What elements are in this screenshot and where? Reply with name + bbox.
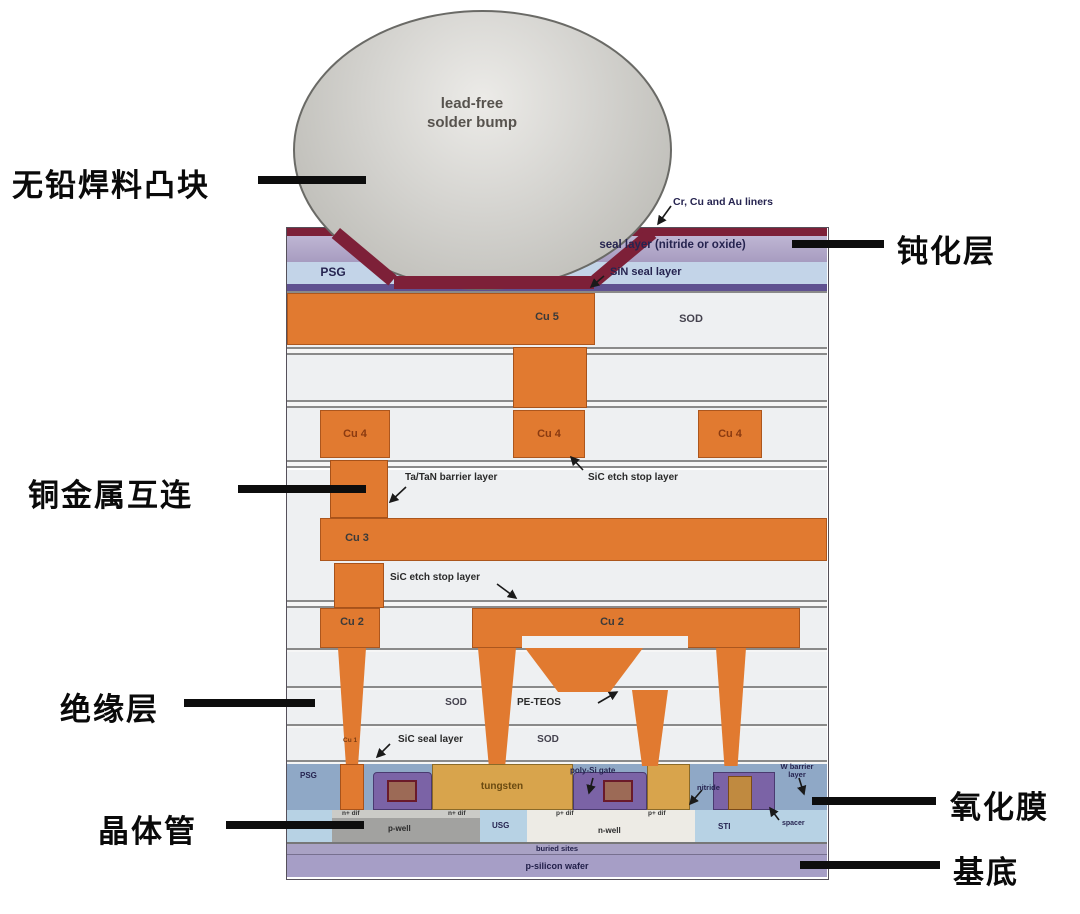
tatan-label: Ta/TaN barrier layer <box>405 472 497 483</box>
callout-interconnect: 铜金属互连 <box>28 470 193 515</box>
callout-oxide: 氧化膜 <box>950 782 1049 827</box>
cu4-right: Cu 4 <box>698 410 762 458</box>
cu2-wide-label: Cu 2 <box>582 616 642 628</box>
cu2-notch <box>522 636 688 648</box>
sic-etch-a-label: SiC etch stop layer <box>588 472 678 483</box>
layer-wafer: p-silicon wafer <box>287 854 827 877</box>
bump-pad-liner-bottom <box>394 276 594 289</box>
wafer-label: p-silicon wafer <box>525 861 588 871</box>
pwell-label: p-well <box>388 824 411 833</box>
sod3-label: SOD <box>518 734 578 745</box>
buried-label: buried sites <box>536 844 578 853</box>
cu4-left-label: Cu 4 <box>343 428 367 440</box>
liners-label: Cr, Cu and Au liners <box>673 196 773 208</box>
callout-substrate: 基底 <box>953 847 1019 892</box>
bump-label: lead-free solder bump <box>372 94 572 132</box>
cu3-label: Cu 3 <box>327 532 387 544</box>
ndif-left-label: n+ dif <box>342 810 360 817</box>
gate-poly-left <box>387 780 417 802</box>
leader-oxide <box>812 797 936 805</box>
leader-passivation <box>792 240 884 248</box>
contact-via-left <box>340 764 364 810</box>
nwell-label: n-well <box>598 826 621 835</box>
layer-buried: buried sites <box>287 844 827 854</box>
poly-gate-label: poly-Si gate <box>570 766 615 775</box>
cu1-label: Cu 1 <box>343 737 357 744</box>
psg-top-label: PSG <box>310 265 356 279</box>
via-cu3-to-cu2 <box>334 563 384 608</box>
leader-solder-bump <box>258 176 366 184</box>
cu4-mid-label: Cu 4 <box>537 428 561 440</box>
sic-etch-b-label: SiC etch stop layer <box>390 572 480 583</box>
psg-feol-label: PSG <box>300 771 317 780</box>
bump-label-line2: solder bump <box>372 113 572 132</box>
gate-poly-right <box>603 780 633 802</box>
nitride-label: nitride <box>697 783 720 792</box>
cu5-label: Cu 5 <box>517 311 577 323</box>
sod1-label: SOD <box>656 313 726 325</box>
cu4-right-label: Cu 4 <box>718 428 742 440</box>
tungsten-contact-small <box>647 764 690 810</box>
ndif-right-label: n+ dif <box>448 810 466 817</box>
via-cu5-to-cu4 <box>513 347 587 408</box>
usg-mid-label: USG <box>492 821 509 830</box>
leader-insulation <box>184 699 315 707</box>
leader-transistor <box>226 821 364 829</box>
sic-seal-label: SiC seal layer <box>398 734 463 745</box>
cu3-block <box>320 518 827 561</box>
leader-substrate <box>800 861 940 869</box>
seal-layer-label: seal layer (nitride or oxide) <box>560 239 785 251</box>
callout-insulation: 绝缘层 <box>60 684 159 729</box>
w-barrier-label: W barrier layer <box>770 763 824 779</box>
sod2-label: SOD <box>421 697 491 708</box>
peteos-label: PE-TEOS <box>517 697 561 708</box>
spacer-label: spacer <box>782 820 805 827</box>
cu4-mid: Cu 4 <box>513 410 585 458</box>
callout-passivation: 钝化层 <box>897 226 996 271</box>
bump-label-line1: lead-free <box>372 94 572 113</box>
leader-interconnect <box>238 485 366 493</box>
cu4-left: Cu 4 <box>320 410 390 458</box>
cu2-left-label: Cu 2 <box>322 616 382 628</box>
cu2-left <box>320 608 380 648</box>
pdif-right-label: p+ dif <box>648 810 666 817</box>
callout-transistor: 晶体管 <box>98 806 197 851</box>
callout-solder-bump: 无铅焊料凸块 <box>12 160 210 205</box>
contact-core-right <box>728 776 752 810</box>
sin-seal-label: SiN seal layer <box>610 266 682 278</box>
pdif-left-label: p+ dif <box>556 810 574 817</box>
sti-label: STI <box>718 822 730 831</box>
w-barrier-line2: layer <box>770 771 824 779</box>
cmos-cross-section-figure: Cu 4 Cu 4 Cu 4 buried sites p-silicon wa… <box>0 0 1080 914</box>
tungsten-label: tungsten <box>452 781 552 792</box>
